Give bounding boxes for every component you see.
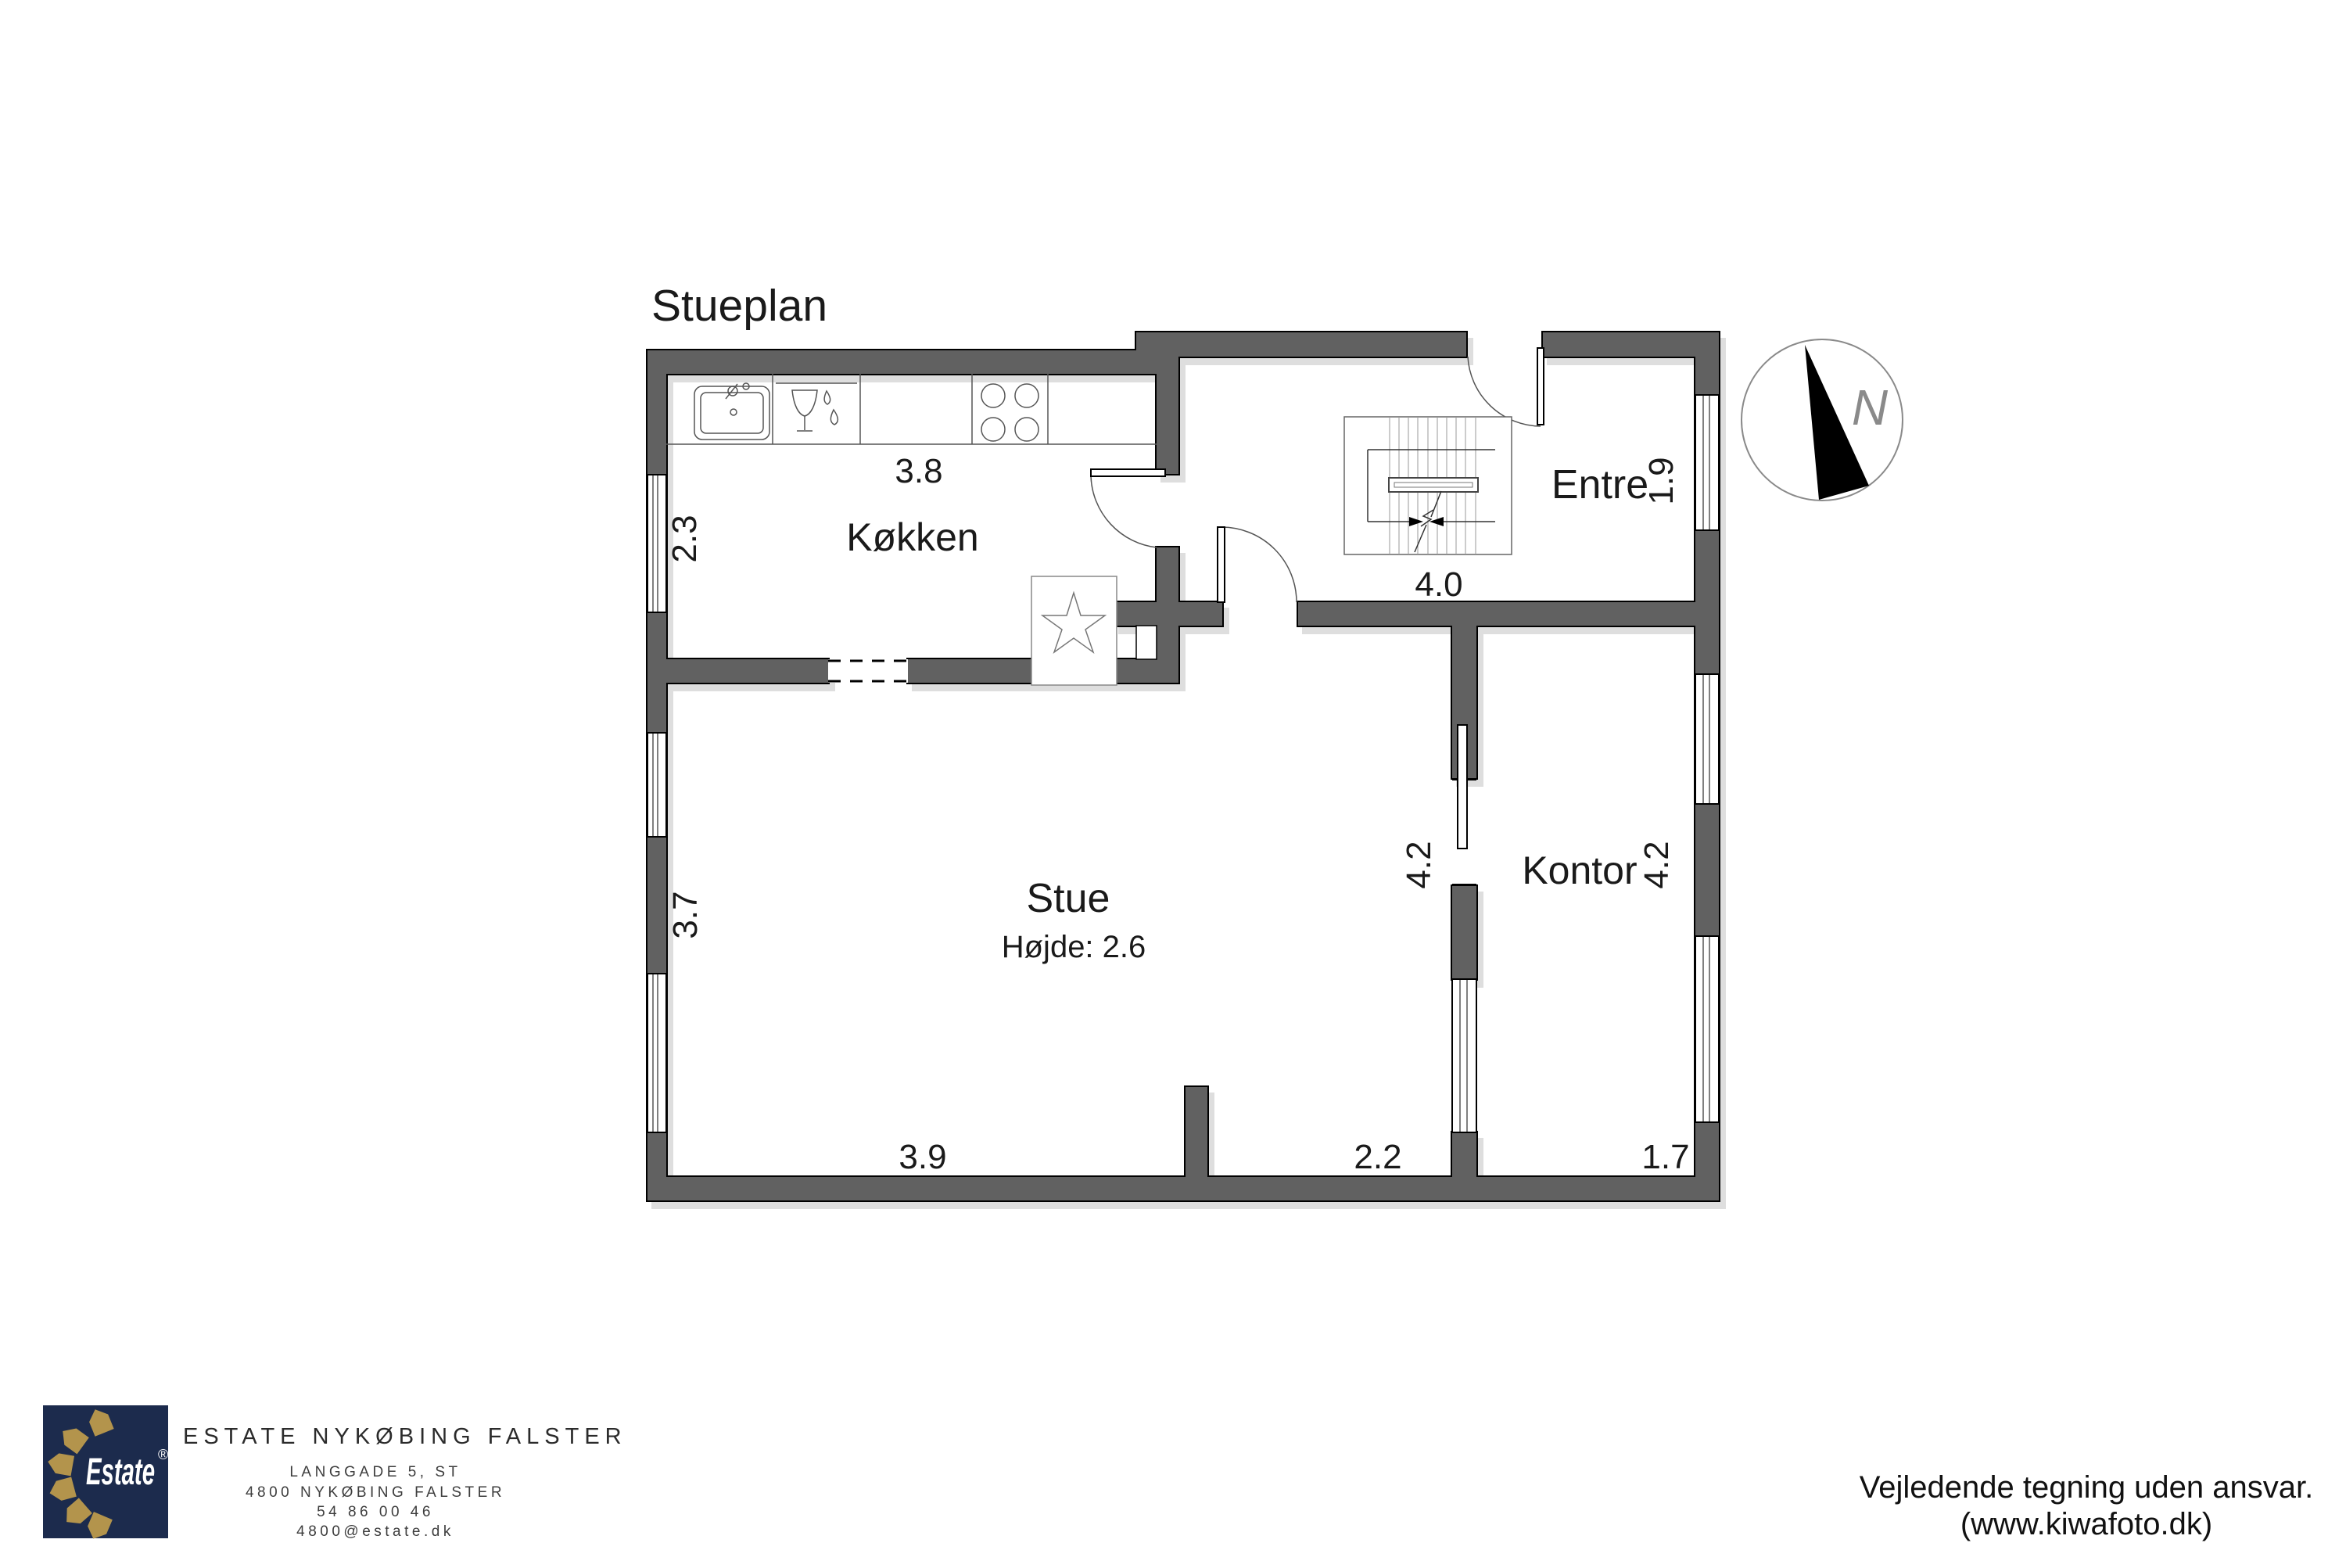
dim-stue-south-west: 3.9	[899, 1138, 946, 1176]
window-stue-west-2	[647, 974, 666, 1132]
hall-stue-door	[1218, 527, 1297, 602]
agency-address-line1: LANGGADE 5, ST	[289, 1464, 461, 1480]
dim-entre-depth: 1.9	[1642, 457, 1681, 504]
kitchen-stue-opening	[828, 659, 908, 683]
page-title: Stueplan	[651, 281, 827, 331]
agency-phone: 54 86 00 46	[317, 1504, 434, 1520]
window-kitchen-west	[647, 475, 666, 612]
logo-wordmark: Estate	[86, 1451, 155, 1493]
logo-registered-mark: ®	[158, 1447, 168, 1462]
dim-stue-south-east: 2.2	[1354, 1138, 1401, 1176]
window-kontor-east-1	[1695, 674, 1719, 804]
floorplan-canvas: Stueplan	[0, 0, 2346, 1564]
dim-stue-east-depth: 4.2	[1400, 841, 1438, 888]
kitchen-door	[1091, 469, 1165, 547]
wall-notch	[1136, 626, 1157, 659]
label-kontor: Kontor	[1522, 849, 1637, 892]
window-entre-east	[1695, 395, 1719, 530]
label-entre: Entre	[1551, 462, 1648, 508]
agency-email: 4800@estate.dk	[296, 1523, 454, 1540]
stairs	[1344, 417, 1512, 554]
entrance-door	[1468, 348, 1544, 426]
label-stue-ceiling: Højde: 2.6	[1002, 930, 1146, 964]
disclaimer-line1: Vejledende tegning uden ansvar.	[1860, 1470, 2314, 1505]
dim-stue-depth: 3.7	[666, 891, 705, 938]
partition-glass-section	[1452, 979, 1476, 1132]
agency-info: ESTATE NYKØBING FALSTER LANGGADE 5, ST 4…	[183, 1424, 627, 1540]
window-kontor-east-2	[1695, 936, 1719, 1122]
stove-icon	[981, 384, 1038, 441]
dim-kontor-depth: 4.2	[1638, 841, 1676, 888]
stair-handrail	[1389, 478, 1478, 492]
window-stue-west-1	[647, 733, 666, 837]
disclaimer-line2: (www.kiwafoto.dk)	[1960, 1507, 2212, 1541]
fireplace-star-symbol	[1031, 576, 1117, 685]
dim-koekken-width: 3.8	[895, 452, 942, 490]
label-koekken: Køkken	[846, 515, 979, 559]
label-stue: Stue	[1027, 876, 1110, 921]
sink-icon	[694, 383, 769, 440]
compass-icon: N	[1742, 339, 1903, 501]
agency-address-line2: 4800 NYKØBING FALSTER	[246, 1484, 505, 1501]
dim-entre-width: 4.0	[1415, 565, 1462, 604]
compass-north-label: N	[1852, 379, 1889, 436]
dim-koekken-depth: 2.3	[665, 515, 704, 562]
dim-kontor-south: 1.7	[1641, 1138, 1689, 1176]
dishwasher-icon	[776, 383, 857, 431]
estate-logo: Estate ®	[43, 1405, 168, 1543]
disclaimer: Vejledende tegning uden ansvar. (www.kiw…	[1860, 1470, 2314, 1541]
agency-name: ESTATE NYKØBING FALSTER	[183, 1424, 627, 1449]
